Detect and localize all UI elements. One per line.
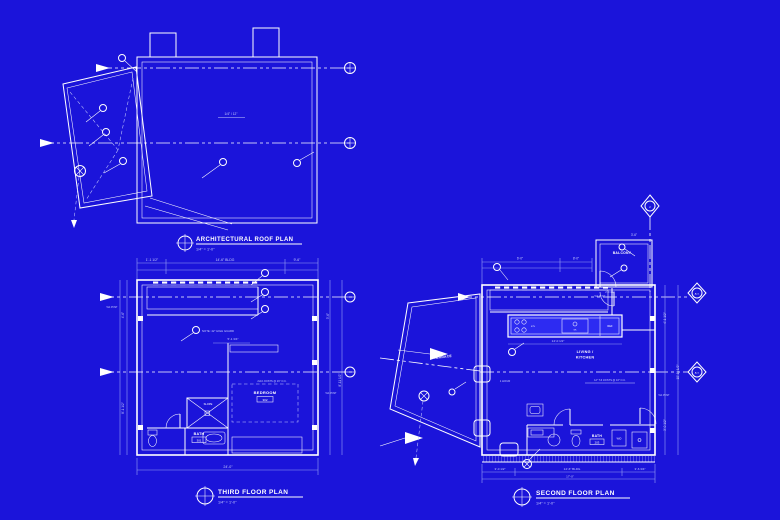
dim-text: 8'-11 1/2" <box>338 373 342 386</box>
note-text: 12" TJI JOISTS @ 16" O.C. <box>594 378 626 382</box>
keynote-callout-icon <box>262 306 269 313</box>
second-floor-notes: 1 HOUR 12" TJI JOISTS @ 16" O.C. <box>500 378 635 383</box>
door-swing <box>554 409 570 425</box>
section-cut-arrow-icon <box>380 432 423 446</box>
roof-plan: 1/4" / 12" ARCHITECTURAL ROOF PLAN 1/4" … <box>40 28 356 252</box>
keynote-callout-icon <box>193 327 200 334</box>
roof-plan-scale: 1/4" = 1'-0" <box>196 248 215 252</box>
room-tag: 302 <box>262 398 267 402</box>
post <box>312 316 317 321</box>
washer-label: W/D <box>617 438 622 441</box>
keynote-callout-icon <box>619 244 625 250</box>
dim-text: 3'-0 1/2" <box>495 467 506 471</box>
second-floor-title: SECOND FLOOR PLAN <box>536 490 615 497</box>
second-floor-balcony: BALCONY 2'-0 1/2" <box>596 240 652 294</box>
post-note: 5x4 POST <box>106 306 118 309</box>
dim-text: 14'-6" BLDG <box>216 258 235 262</box>
dim-text: 24'-0" <box>223 465 233 469</box>
dim-text: 3'-0 1/2" <box>663 419 667 431</box>
section-cut-arrow-icon <box>40 139 54 147</box>
third-floor-guard-note: NOTE: 42" HIGH GUARD <box>181 327 234 342</box>
section-cut-arrow-icon <box>100 368 114 376</box>
slope-label: SLOPE <box>204 402 213 406</box>
roof-plan-title-block: ARCHITECTURAL ROOF PLAN 1/4" = 1'-0" <box>176 234 302 252</box>
grid-bubble-icon <box>345 138 356 149</box>
dim-text: 8'-0" <box>573 257 579 261</box>
roof-slope-note-text: 1/4" / 12" <box>225 112 238 116</box>
closet-hatch <box>232 437 302 453</box>
third-floor-shower: SLOPE <box>187 398 228 428</box>
third-floor-posts: 5x4 POST 5x4 POST <box>106 306 337 430</box>
stove-label: STV <box>531 326 536 328</box>
stair-treads <box>490 290 608 310</box>
door-swing <box>166 414 180 428</box>
roof-dormer <box>150 33 176 57</box>
roof-dormer <box>253 28 279 57</box>
post-note: 5x4 POST <box>658 394 670 397</box>
grid-bubble-icon <box>345 292 355 302</box>
second-floor-bottom-dims: 3'-0 1/2" 14'-6" BLDG 3'-6 3/4" 17'-0" <box>482 449 655 483</box>
roof-centerlines <box>40 63 356 149</box>
living-kitchen-label: LIVING / KITCHEN <box>576 350 595 360</box>
section-cut-arrow-icon <box>96 64 110 72</box>
roof-plan-title: ARCHITECTURAL ROOF PLAN <box>196 237 293 243</box>
note-text: 1 HOUR <box>500 379 511 383</box>
keynote-callout-icon <box>120 158 127 165</box>
third-floor-interior: 5'-1 3/4" 2x10 JOISTS @ 16" O.C. BEDROOM… <box>213 337 302 455</box>
toilet-bowl <box>149 436 157 447</box>
third-floor-scale: 1/4" = 1'-0" <box>218 501 237 505</box>
keynote-callout-icon <box>262 270 269 277</box>
grid-bubble-icon <box>345 63 356 74</box>
plan-reference-icon <box>176 234 194 252</box>
post <box>312 360 317 365</box>
roof-slope-note: 1/4" / 12" <box>218 112 245 118</box>
section-cut-arrow-icon <box>100 293 114 301</box>
keynote-callout-icon <box>119 55 126 62</box>
dim-text: 6'-0" <box>517 257 523 261</box>
note-text: NOTE: 42" HIGH GUARD <box>202 329 234 333</box>
desk <box>527 404 543 416</box>
window-wall <box>150 282 258 286</box>
keynote-callout-icon <box>262 289 269 296</box>
keynote-callout-icon <box>220 159 227 166</box>
dim-text: 9'-6" <box>294 258 302 262</box>
dim-text: 5'-1 3/4" <box>228 337 239 341</box>
second-floor-grid-marker: 2 <box>641 195 659 292</box>
shower <box>632 432 647 448</box>
dim-text: 4'-6" <box>121 312 125 318</box>
section-ref: A2.1 <box>695 293 700 296</box>
keynote-callout-icon <box>494 264 501 271</box>
roof-connector <box>145 198 232 230</box>
third-floor-stairs <box>147 270 269 320</box>
room-label-bedroom: BEDROOM <box>254 390 277 395</box>
grid-ref: 2 <box>649 205 651 209</box>
post <box>650 368 655 373</box>
second-floor-bath: BATH 203 W/D <box>527 404 656 455</box>
dim-text: 3'-6" <box>631 233 637 237</box>
keynote-callout-icon <box>509 349 516 356</box>
keynote-callout-icon <box>100 105 107 112</box>
keynote-callout-icon <box>621 265 627 271</box>
plan-reference-icon <box>512 487 532 507</box>
dim-text: 2'-0 1/2" <box>605 290 615 294</box>
slope-reference-icon <box>413 391 429 466</box>
kitchen-counter: STV SK REF 14'-0 1/2" <box>508 315 622 356</box>
window-wall <box>492 287 608 291</box>
second-floor-centerlines: A2.1 A2.1 <box>380 283 706 446</box>
section-ref: A2.1 <box>695 372 700 375</box>
room-tag: 203 <box>595 440 600 444</box>
second-floor-plan: 2 BALCONY 2'-0 1/2" 6'-0" 8'-0" 3'-6" <box>380 195 706 507</box>
dim-text: 10'-11 1/2" <box>676 365 680 380</box>
room-label-living: LIVING / <box>577 350 594 354</box>
post-note: 5x4 POST <box>325 392 337 395</box>
second-floor-title-block: SECOND FLOOR PLAN 1/4" = 1'-0" <box>512 487 630 507</box>
post <box>138 316 143 321</box>
dim-text: 3'-6" <box>326 313 330 319</box>
dim-text: 14'-6" BLDG <box>564 467 581 471</box>
dim-text: 4'-1 1/2" <box>663 312 667 324</box>
stair-treads <box>147 287 258 309</box>
toilet-tank <box>148 430 157 435</box>
second-floor-top-dims: 6'-0" 8'-0" 3'-6" <box>482 233 637 285</box>
ridge-line <box>118 78 133 150</box>
post-wrap <box>500 443 518 456</box>
roof-tilted-outline <box>63 67 152 228</box>
dim-text: 17'-0" <box>566 475 574 479</box>
door-swing <box>640 408 656 424</box>
second-floor-stairs <box>490 290 608 312</box>
post-note: 5x4 POST <box>594 295 606 298</box>
keynote-callout-icon <box>449 389 455 395</box>
counter <box>230 345 278 352</box>
note-text: 2x10 JOISTS @ 16" O.C. <box>257 379 287 383</box>
grid-bubble-icon <box>345 367 355 377</box>
room-tag: 301 <box>197 438 202 442</box>
rail-hatch <box>482 456 655 462</box>
post <box>650 316 655 321</box>
third-floor-title: THIRD FLOOR PLAN <box>218 489 288 496</box>
room-label-kitchen: KITCHEN <box>576 356 595 360</box>
post <box>650 428 655 433</box>
third-floor-dimension-chains: 1'-1 1/2" 14'-6" BLDG 9'-6" 24'-0" 4'-6"… <box>120 258 342 475</box>
post <box>138 425 143 430</box>
room-label-bath: BATH <box>592 434 602 438</box>
toilet-bowl <box>572 436 580 447</box>
roof-keynote-callouts <box>86 55 314 179</box>
keynote-callout-icon <box>103 129 110 136</box>
blueprint-sheet: 1/4" / 12" ARCHITECTURAL ROOF PLAN 1/4" … <box>0 0 780 520</box>
third-floor-title-block: THIRD FLOOR PLAN 1/4" = 1'-0" <box>195 486 303 506</box>
dim-text: 8'-1 1/2" <box>121 402 125 414</box>
keynote-callout-icon <box>294 160 301 167</box>
ridge-line <box>86 150 118 200</box>
dim-text: 14'-0 1/2" <box>552 339 565 343</box>
terrace: TERRACE <box>390 294 480 466</box>
second-floor-walls <box>482 285 655 455</box>
dim-text: 1'-1 1/2" <box>146 258 159 262</box>
fridge-label: REF <box>607 324 613 328</box>
section-marker-icon: A2.1 <box>688 283 706 303</box>
room-label-terrace: TERRACE <box>434 354 453 360</box>
section-marker-icon: A2.1 <box>688 362 706 382</box>
plan-reference-icon <box>195 486 215 506</box>
shower-drain <box>638 439 641 442</box>
ridge-line <box>70 92 118 150</box>
second-floor-scale: 1/4" = 1'-0" <box>536 502 555 506</box>
third-floor-plan: 1'-1 1/2" 14'-6" BLDG 9'-6" 24'-0" 4'-6"… <box>100 258 355 506</box>
deck-rail <box>482 456 655 462</box>
toilet-tank <box>571 430 581 434</box>
post-wraps <box>474 366 518 456</box>
roof-main-outline <box>137 28 317 223</box>
blueprint-drawing: 1/4" / 12" ARCHITECTURAL ROOF PLAN 1/4" … <box>0 0 780 520</box>
post <box>312 425 317 430</box>
dim-text: 3'-6 3/4" <box>635 467 646 471</box>
